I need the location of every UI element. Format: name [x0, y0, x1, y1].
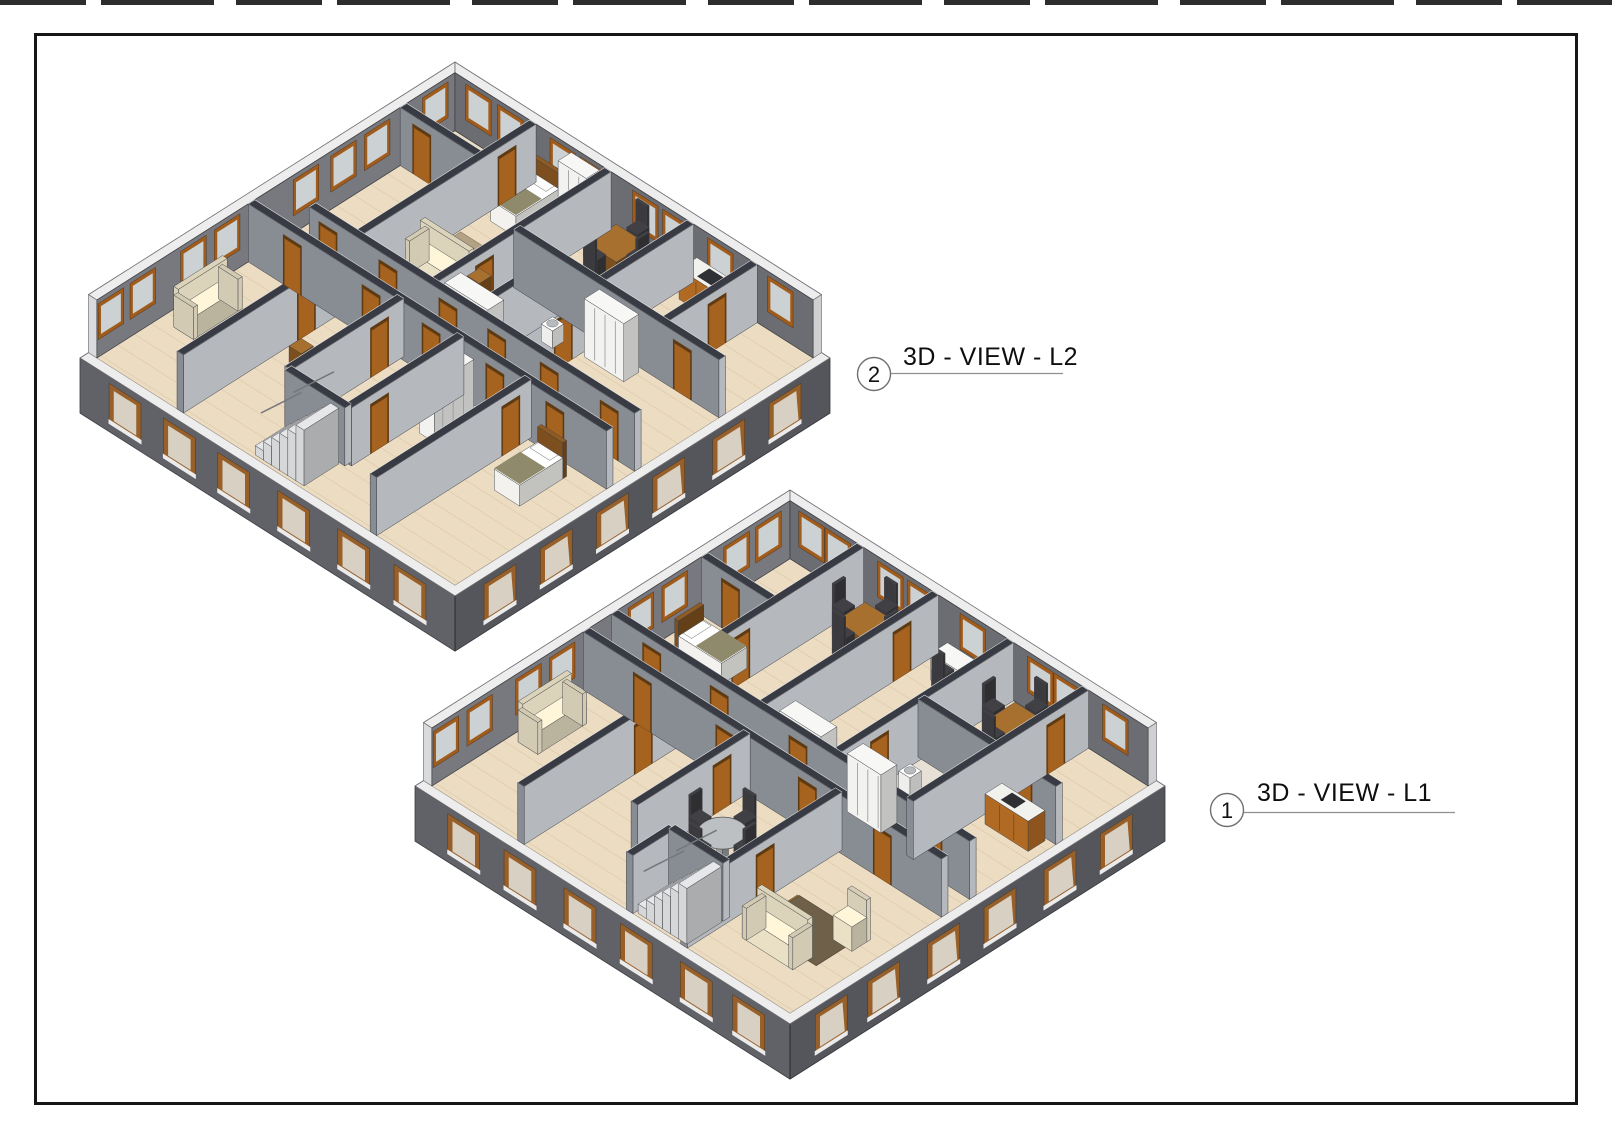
drawing-sheet: 2 3D - VIEW - L2 1 3D - VIEW - L1	[0, 0, 1612, 1140]
view-title-l2: 3D - VIEW - L2	[903, 343, 1078, 371]
view-callout-2: 2 3D - VIEW - L2	[858, 343, 1079, 391]
view-number-1: 1	[1221, 798, 1233, 823]
view-number-2: 2	[868, 362, 880, 387]
drawing-canvas: 2 3D - VIEW - L2 1 3D - VIEW - L1	[0, 0, 1612, 1140]
view-callout-1: 1 3D - VIEW - L1	[1211, 779, 1456, 827]
view-title-l1: 3D - VIEW - L1	[1257, 779, 1432, 807]
